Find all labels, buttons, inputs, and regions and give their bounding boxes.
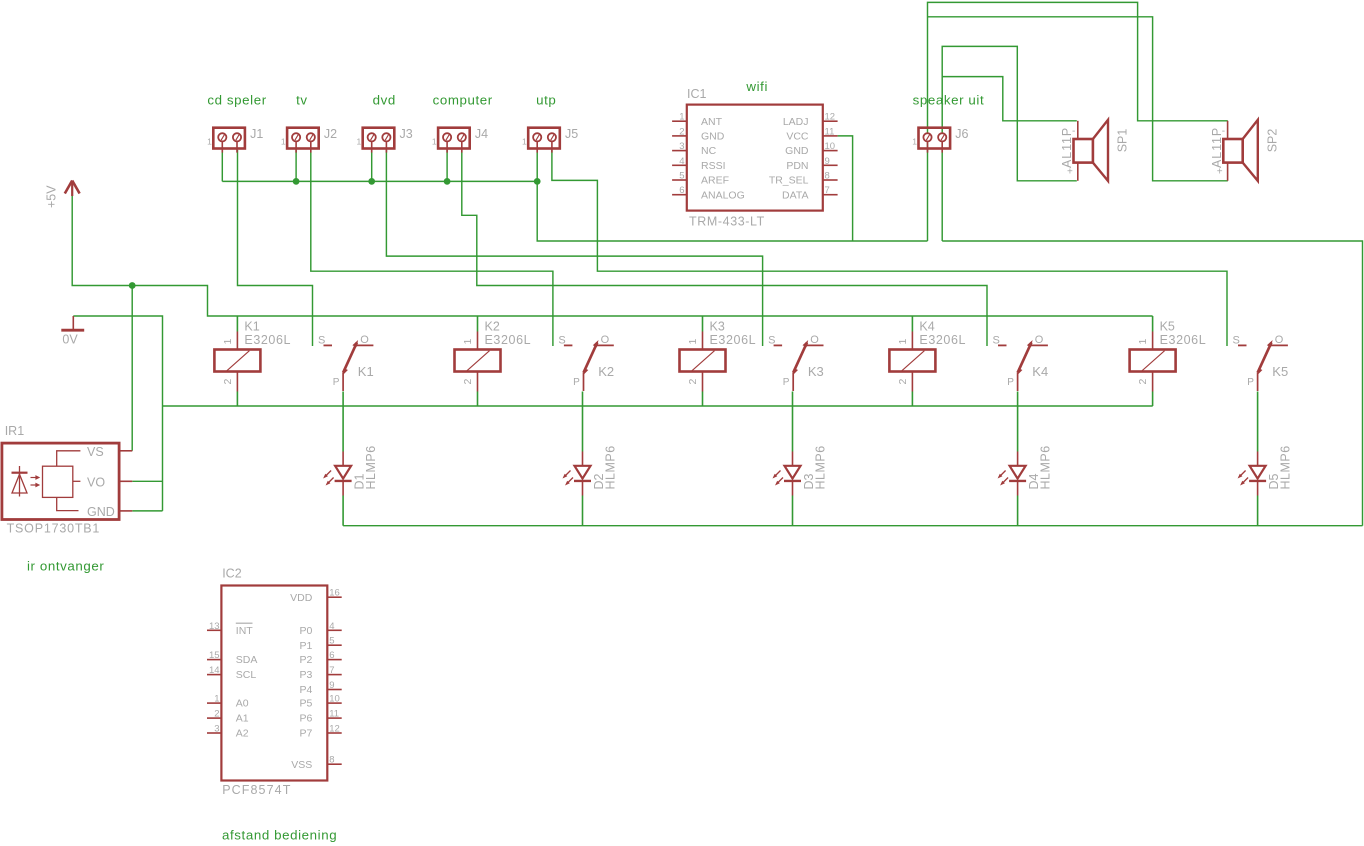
svg-text:computer: computer [433, 93, 493, 108]
svg-text:P: P [333, 377, 340, 388]
svg-text:5: 5 [329, 636, 334, 647]
svg-text:P7: P7 [299, 728, 312, 740]
svg-text:wifi: wifi [745, 79, 768, 94]
svg-text:S: S [768, 335, 775, 347]
svg-text:O: O [1035, 334, 1044, 346]
svg-text:1: 1 [679, 112, 684, 123]
svg-text:+5V: +5V [45, 185, 59, 208]
svg-text:14: 14 [209, 665, 220, 676]
svg-text:P3: P3 [299, 669, 312, 681]
svg-text:K3: K3 [808, 364, 824, 379]
svg-text:-: - [1222, 126, 1225, 137]
svg-text:13: 13 [209, 621, 220, 632]
svg-text:SP1: SP1 [1116, 129, 1130, 153]
svg-text:K5: K5 [1160, 320, 1175, 334]
svg-text:11: 11 [825, 126, 835, 137]
svg-text:IC1: IC1 [687, 87, 707, 101]
svg-text:P2: P2 [299, 654, 312, 666]
svg-text:J6: J6 [955, 127, 968, 141]
svg-text:K2: K2 [598, 364, 614, 379]
svg-text:1: 1 [432, 137, 437, 147]
svg-text:12: 12 [329, 724, 340, 735]
svg-text:ir ontvanger: ir ontvanger [27, 559, 104, 574]
svg-text:dvd: dvd [373, 93, 396, 108]
svg-text:J4: J4 [475, 127, 488, 141]
svg-text:6: 6 [679, 185, 684, 196]
svg-text:K4: K4 [1032, 364, 1048, 379]
svg-text:2: 2 [897, 379, 909, 385]
svg-text:1: 1 [214, 694, 219, 705]
svg-text:1: 1 [522, 137, 527, 147]
svg-text:2: 2 [462, 379, 474, 385]
svg-text:2: 2 [1137, 379, 1149, 385]
svg-text:AREF: AREF [701, 175, 729, 187]
svg-text:TRM-433-LT: TRM-433-LT [689, 215, 765, 229]
svg-text:2: 2 [222, 379, 234, 385]
svg-text:VO: VO [87, 476, 105, 490]
svg-text:O: O [360, 334, 369, 346]
svg-text:8: 8 [329, 755, 334, 766]
svg-text:HLMP6: HLMP6 [604, 445, 618, 489]
svg-text:E3206L: E3206L [244, 333, 291, 347]
svg-text:A2: A2 [236, 728, 249, 740]
svg-text:P6: P6 [299, 713, 312, 725]
svg-text:10: 10 [329, 694, 340, 705]
svg-text:SDA: SDA [236, 654, 258, 666]
svg-text:10: 10 [825, 141, 836, 152]
svg-text:P0: P0 [299, 625, 312, 637]
svg-text:A0: A0 [236, 698, 249, 710]
svg-text:-: - [1072, 126, 1075, 137]
svg-text:+: + [1217, 167, 1223, 178]
svg-text:E3206L: E3206L [710, 333, 757, 347]
svg-text:6: 6 [329, 650, 334, 661]
svg-text:2: 2 [679, 126, 684, 137]
svg-text:P4: P4 [299, 684, 312, 696]
svg-text:utp: utp [536, 93, 556, 108]
svg-text:TR_SEL: TR_SEL [769, 175, 809, 187]
svg-text:1: 1 [357, 137, 362, 147]
svg-text:11: 11 [329, 709, 339, 720]
svg-text:4: 4 [679, 156, 684, 167]
svg-text:1: 1 [687, 339, 699, 345]
svg-text:J2: J2 [324, 127, 337, 141]
svg-text:A1: A1 [236, 713, 249, 725]
svg-text:PCF8574T: PCF8574T [222, 783, 291, 797]
svg-text:P1: P1 [299, 640, 312, 652]
svg-text:SCL: SCL [236, 669, 257, 681]
svg-text:1: 1 [912, 137, 917, 147]
svg-text:HLMP6: HLMP6 [364, 445, 378, 489]
svg-text:TSOP1730TB1: TSOP1730TB1 [7, 522, 101, 536]
svg-text:5: 5 [679, 171, 684, 182]
svg-text:SP2: SP2 [1265, 129, 1279, 153]
svg-text:3: 3 [214, 724, 219, 735]
svg-text:1: 1 [462, 339, 474, 345]
svg-text:VDD: VDD [290, 592, 313, 604]
svg-text:1: 1 [1137, 339, 1149, 345]
svg-text:P5: P5 [299, 698, 312, 710]
svg-text:3: 3 [679, 141, 684, 152]
svg-text:E3206L: E3206L [919, 333, 966, 347]
svg-text:0V: 0V [62, 333, 78, 347]
svg-text:7: 7 [825, 185, 830, 196]
svg-text:P: P [1007, 377, 1014, 388]
svg-text:16: 16 [329, 588, 340, 599]
svg-text:9: 9 [329, 680, 334, 691]
svg-text:RSSI: RSSI [701, 160, 726, 172]
svg-text:12: 12 [825, 112, 836, 123]
svg-text:afstand bediening: afstand bediening [222, 828, 337, 843]
svg-text:7: 7 [329, 665, 334, 676]
svg-text:4: 4 [329, 621, 334, 632]
svg-text:K1: K1 [244, 320, 259, 334]
svg-text:GND: GND [87, 505, 115, 519]
svg-text:J5: J5 [565, 127, 578, 141]
svg-text:S: S [318, 335, 325, 347]
svg-text:LADJ: LADJ [783, 116, 809, 128]
svg-text:E3206L: E3206L [485, 333, 532, 347]
svg-text:9: 9 [825, 156, 830, 167]
svg-text:K1: K1 [358, 364, 374, 379]
svg-text:1: 1 [281, 137, 286, 147]
svg-text:P: P [573, 377, 580, 388]
svg-text:P: P [1247, 377, 1254, 388]
svg-text:ANT: ANT [701, 116, 723, 128]
svg-text:HLMP6: HLMP6 [1279, 445, 1293, 489]
svg-text:S: S [1233, 335, 1240, 347]
svg-text:NC: NC [701, 145, 717, 157]
svg-text:J1: J1 [250, 127, 263, 141]
svg-text:DATA: DATA [782, 189, 808, 201]
svg-text:K3: K3 [710, 320, 725, 334]
svg-text:1: 1 [897, 339, 909, 345]
svg-text:S: S [993, 335, 1000, 347]
svg-text:O: O [810, 334, 819, 346]
svg-text:K4: K4 [919, 320, 934, 334]
svg-text:1: 1 [222, 339, 234, 345]
svg-text:IC2: IC2 [222, 567, 242, 581]
svg-text:tv: tv [296, 93, 308, 108]
svg-text:GND: GND [701, 131, 725, 143]
svg-text:2: 2 [687, 379, 699, 385]
svg-text:VSS: VSS [291, 759, 312, 771]
svg-text:INT: INT [236, 625, 254, 637]
svg-text:P: P [783, 377, 790, 388]
svg-text:HLMP6: HLMP6 [1039, 445, 1053, 489]
svg-text:VCC: VCC [786, 131, 809, 143]
svg-text:K5: K5 [1272, 364, 1288, 379]
svg-text:15: 15 [209, 650, 220, 661]
svg-text:speaker uit: speaker uit [913, 93, 985, 108]
svg-text:PDN: PDN [786, 160, 808, 172]
svg-text:8: 8 [825, 171, 830, 182]
svg-text:O: O [1275, 334, 1284, 346]
svg-text:J3: J3 [400, 127, 413, 141]
svg-text:HLMP6: HLMP6 [814, 445, 828, 489]
svg-text:K2: K2 [485, 320, 500, 334]
svg-text:GND: GND [785, 145, 809, 157]
svg-text:ANALOG: ANALOG [701, 189, 745, 201]
svg-text:O: O [601, 334, 610, 346]
svg-text:2: 2 [214, 709, 219, 720]
svg-text:1: 1 [207, 137, 212, 147]
svg-text:VS: VS [87, 445, 104, 459]
svg-text:cd speler: cd speler [207, 93, 266, 108]
svg-text:IR1: IR1 [5, 424, 25, 438]
svg-text:+: + [1067, 167, 1073, 178]
svg-text:E3206L: E3206L [1160, 333, 1207, 347]
svg-text:S: S [558, 335, 565, 347]
